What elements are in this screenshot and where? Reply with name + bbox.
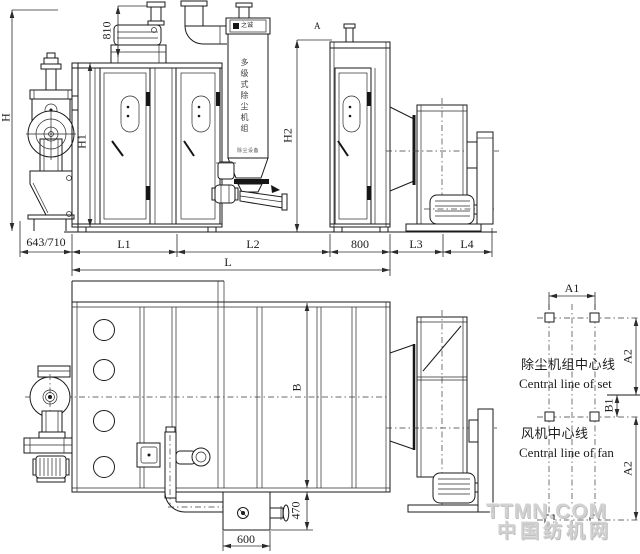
dim-label-a1: A1 <box>549 282 595 294</box>
cabinet-block <box>72 63 222 232</box>
dim-label-h: H <box>0 98 13 138</box>
dim-label-h2: H2 <box>282 116 295 156</box>
plan-handle-mechanism <box>137 427 210 498</box>
plan-discharge-box <box>165 435 289 530</box>
fan-centerline-label-en: Central line of fan <box>519 446 614 459</box>
watermark-line2: 中国纺机网 <box>497 522 612 541</box>
watermark-line1: TTMN.COM <box>486 501 607 522</box>
roof-blower <box>111 2 166 63</box>
plan-left-motor <box>24 366 72 482</box>
outlet-fan-elevation <box>386 98 499 231</box>
dim-label-l4: L4 <box>437 238 497 250</box>
brand-logo-square <box>233 23 239 29</box>
flow-arrow <box>271 185 280 193</box>
tower-name-vertical: 多级式除尘机组 <box>240 58 248 135</box>
plan-view <box>24 281 497 551</box>
set-centerline-label-en: Central line of set <box>519 377 612 390</box>
anchor-bolt <box>545 412 554 421</box>
dim-label-l2: L2 <box>223 238 283 250</box>
dim-label-l1: L1 <box>94 238 154 250</box>
drawing-linework <box>0 0 640 554</box>
dim-label-470: 470 <box>290 491 303 531</box>
dim-label-800: 800 <box>330 238 390 250</box>
tower-brand-text: 之诚 <box>241 23 253 29</box>
tower-sub-label: 除尘设备 <box>232 149 264 154</box>
dim-label-l: L <box>198 256 258 268</box>
dim-label-600: 600 <box>216 533 276 545</box>
anchor-bolt <box>590 313 599 322</box>
dim-label-h1: H1 <box>76 122 89 162</box>
anchor-bolt <box>545 313 554 322</box>
dim-label-a2-top: A2 <box>622 337 635 377</box>
roof-vent <box>344 24 355 28</box>
slide-gate <box>234 179 269 184</box>
set-centerline-label-cn: 除尘机组中心线 <box>521 358 616 371</box>
dim-label-b: B <box>291 368 304 408</box>
section-marker-a: A <box>314 22 321 31</box>
dim-label-810: 810 <box>101 11 114 51</box>
filter-tower <box>212 3 287 210</box>
fan-centerline-label-cn: 风机中心线 <box>521 427 589 440</box>
foundation-plan <box>537 292 640 533</box>
cabinet-right <box>330 24 390 232</box>
anchor-bolt <box>590 412 599 421</box>
exhaust-elbow-duct <box>181 1 227 44</box>
technical-drawing-dust-collector: H 810 H1 H2 A 643/710 L1 L2 800 L3 L4 L … <box>0 0 640 554</box>
plan-fan <box>386 310 497 512</box>
dim-label-b1: B1 <box>603 386 616 426</box>
left-fan-side-view <box>26 53 78 231</box>
dim-label-643-710: 643/710 <box>16 236 76 248</box>
dim-label-a2-bottom: A2 <box>622 449 635 489</box>
